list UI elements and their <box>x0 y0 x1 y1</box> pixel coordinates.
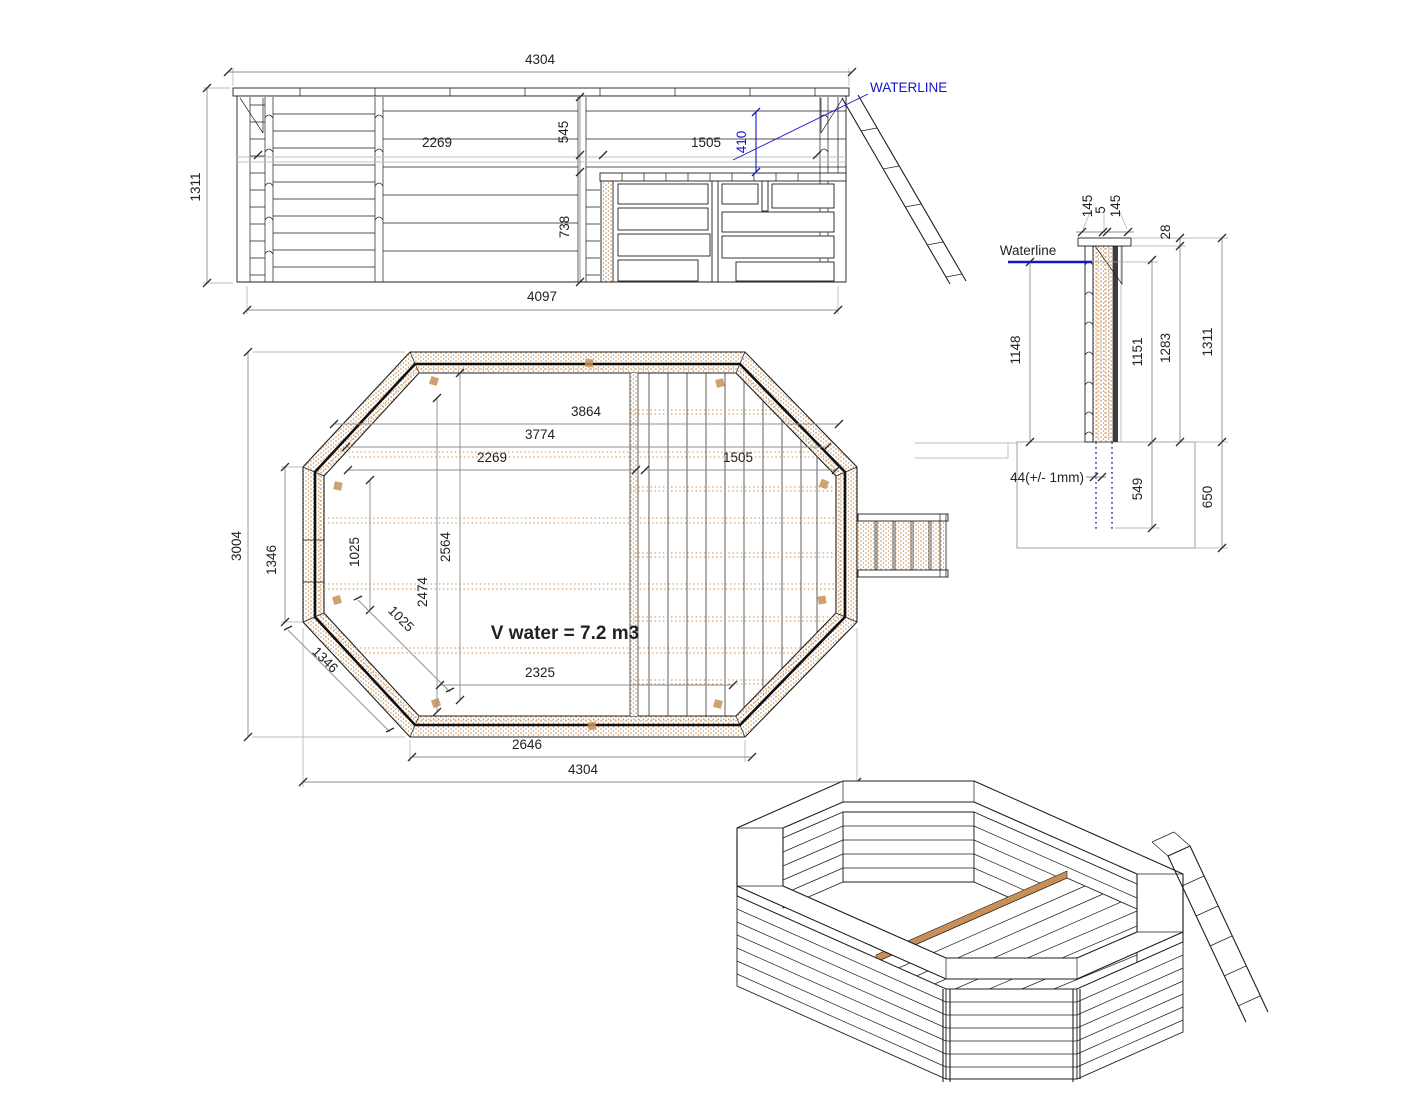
section-outer-board <box>1085 246 1093 442</box>
dim-plan-2646: 2646 <box>512 737 542 752</box>
dim-sec-549: 549 <box>1130 478 1145 501</box>
dim-elev-545: 545 <box>556 121 571 144</box>
dim-plan-2325: 2325 <box>525 665 555 680</box>
dim-sec-650: 650 <box>1200 486 1215 509</box>
dim-sec-1148: 1148 <box>1008 335 1023 364</box>
dim-elev-1505: 1505 <box>691 135 721 150</box>
dim-plan-1346-left: 1346 <box>264 545 279 575</box>
dim-sec-1311: 1311 <box>1200 327 1215 356</box>
dim-plan-4304: 4304 <box>568 762 599 777</box>
dim-elev-738: 738 <box>557 216 572 239</box>
dim-plan-3864: 3864 <box>571 404 602 419</box>
dim-sec-28: 28 <box>1158 224 1173 239</box>
plan-ladder <box>858 514 948 577</box>
dim-sec-5: 5 <box>1093 206 1108 214</box>
elevation-cap-rail <box>233 88 849 96</box>
dim-sec-1151: 1151 <box>1130 337 1145 366</box>
dim-plan-1025-v: 1025 <box>347 537 362 567</box>
dim-plan-2474: 2474 <box>415 576 430 607</box>
technical-drawing-page: 4304 1311 4097 545 738 2269 1505 410 WAT… <box>0 0 1422 1100</box>
dim-sec-145b: 145 <box>1108 195 1123 218</box>
volume-note: V water = 7.2 m3 <box>491 623 639 644</box>
dim-plan-2269: 2269 <box>477 450 507 465</box>
dim-plan-1505: 1505 <box>723 450 753 465</box>
dim-sec-44: 44(+/- 1mm) <box>1010 470 1084 485</box>
dim-elev-410: 410 <box>734 131 749 154</box>
elevation-waterline-label: WATERLINE <box>870 80 947 95</box>
section-cap-plate <box>1078 238 1131 246</box>
dim-elev-1311: 1311 <box>188 172 203 201</box>
dim-elev-4304: 4304 <box>525 52 556 67</box>
dim-plan-3774: 3774 <box>525 427 556 442</box>
dim-plan-2564: 2564 <box>438 531 453 562</box>
bench-post <box>601 181 613 282</box>
dim-elev-4097: 4097 <box>527 289 557 304</box>
section-waterline-label: Waterline <box>1000 243 1057 258</box>
dim-sec-1283: 1283 <box>1158 333 1173 363</box>
pool-drawing-svg: 4304 1311 4097 545 738 2269 1505 410 WAT… <box>0 0 1422 1100</box>
section-wall-core <box>1093 246 1113 442</box>
dim-elev-2269: 2269 <box>422 135 452 150</box>
dim-plan-3004: 3004 <box>229 530 244 561</box>
